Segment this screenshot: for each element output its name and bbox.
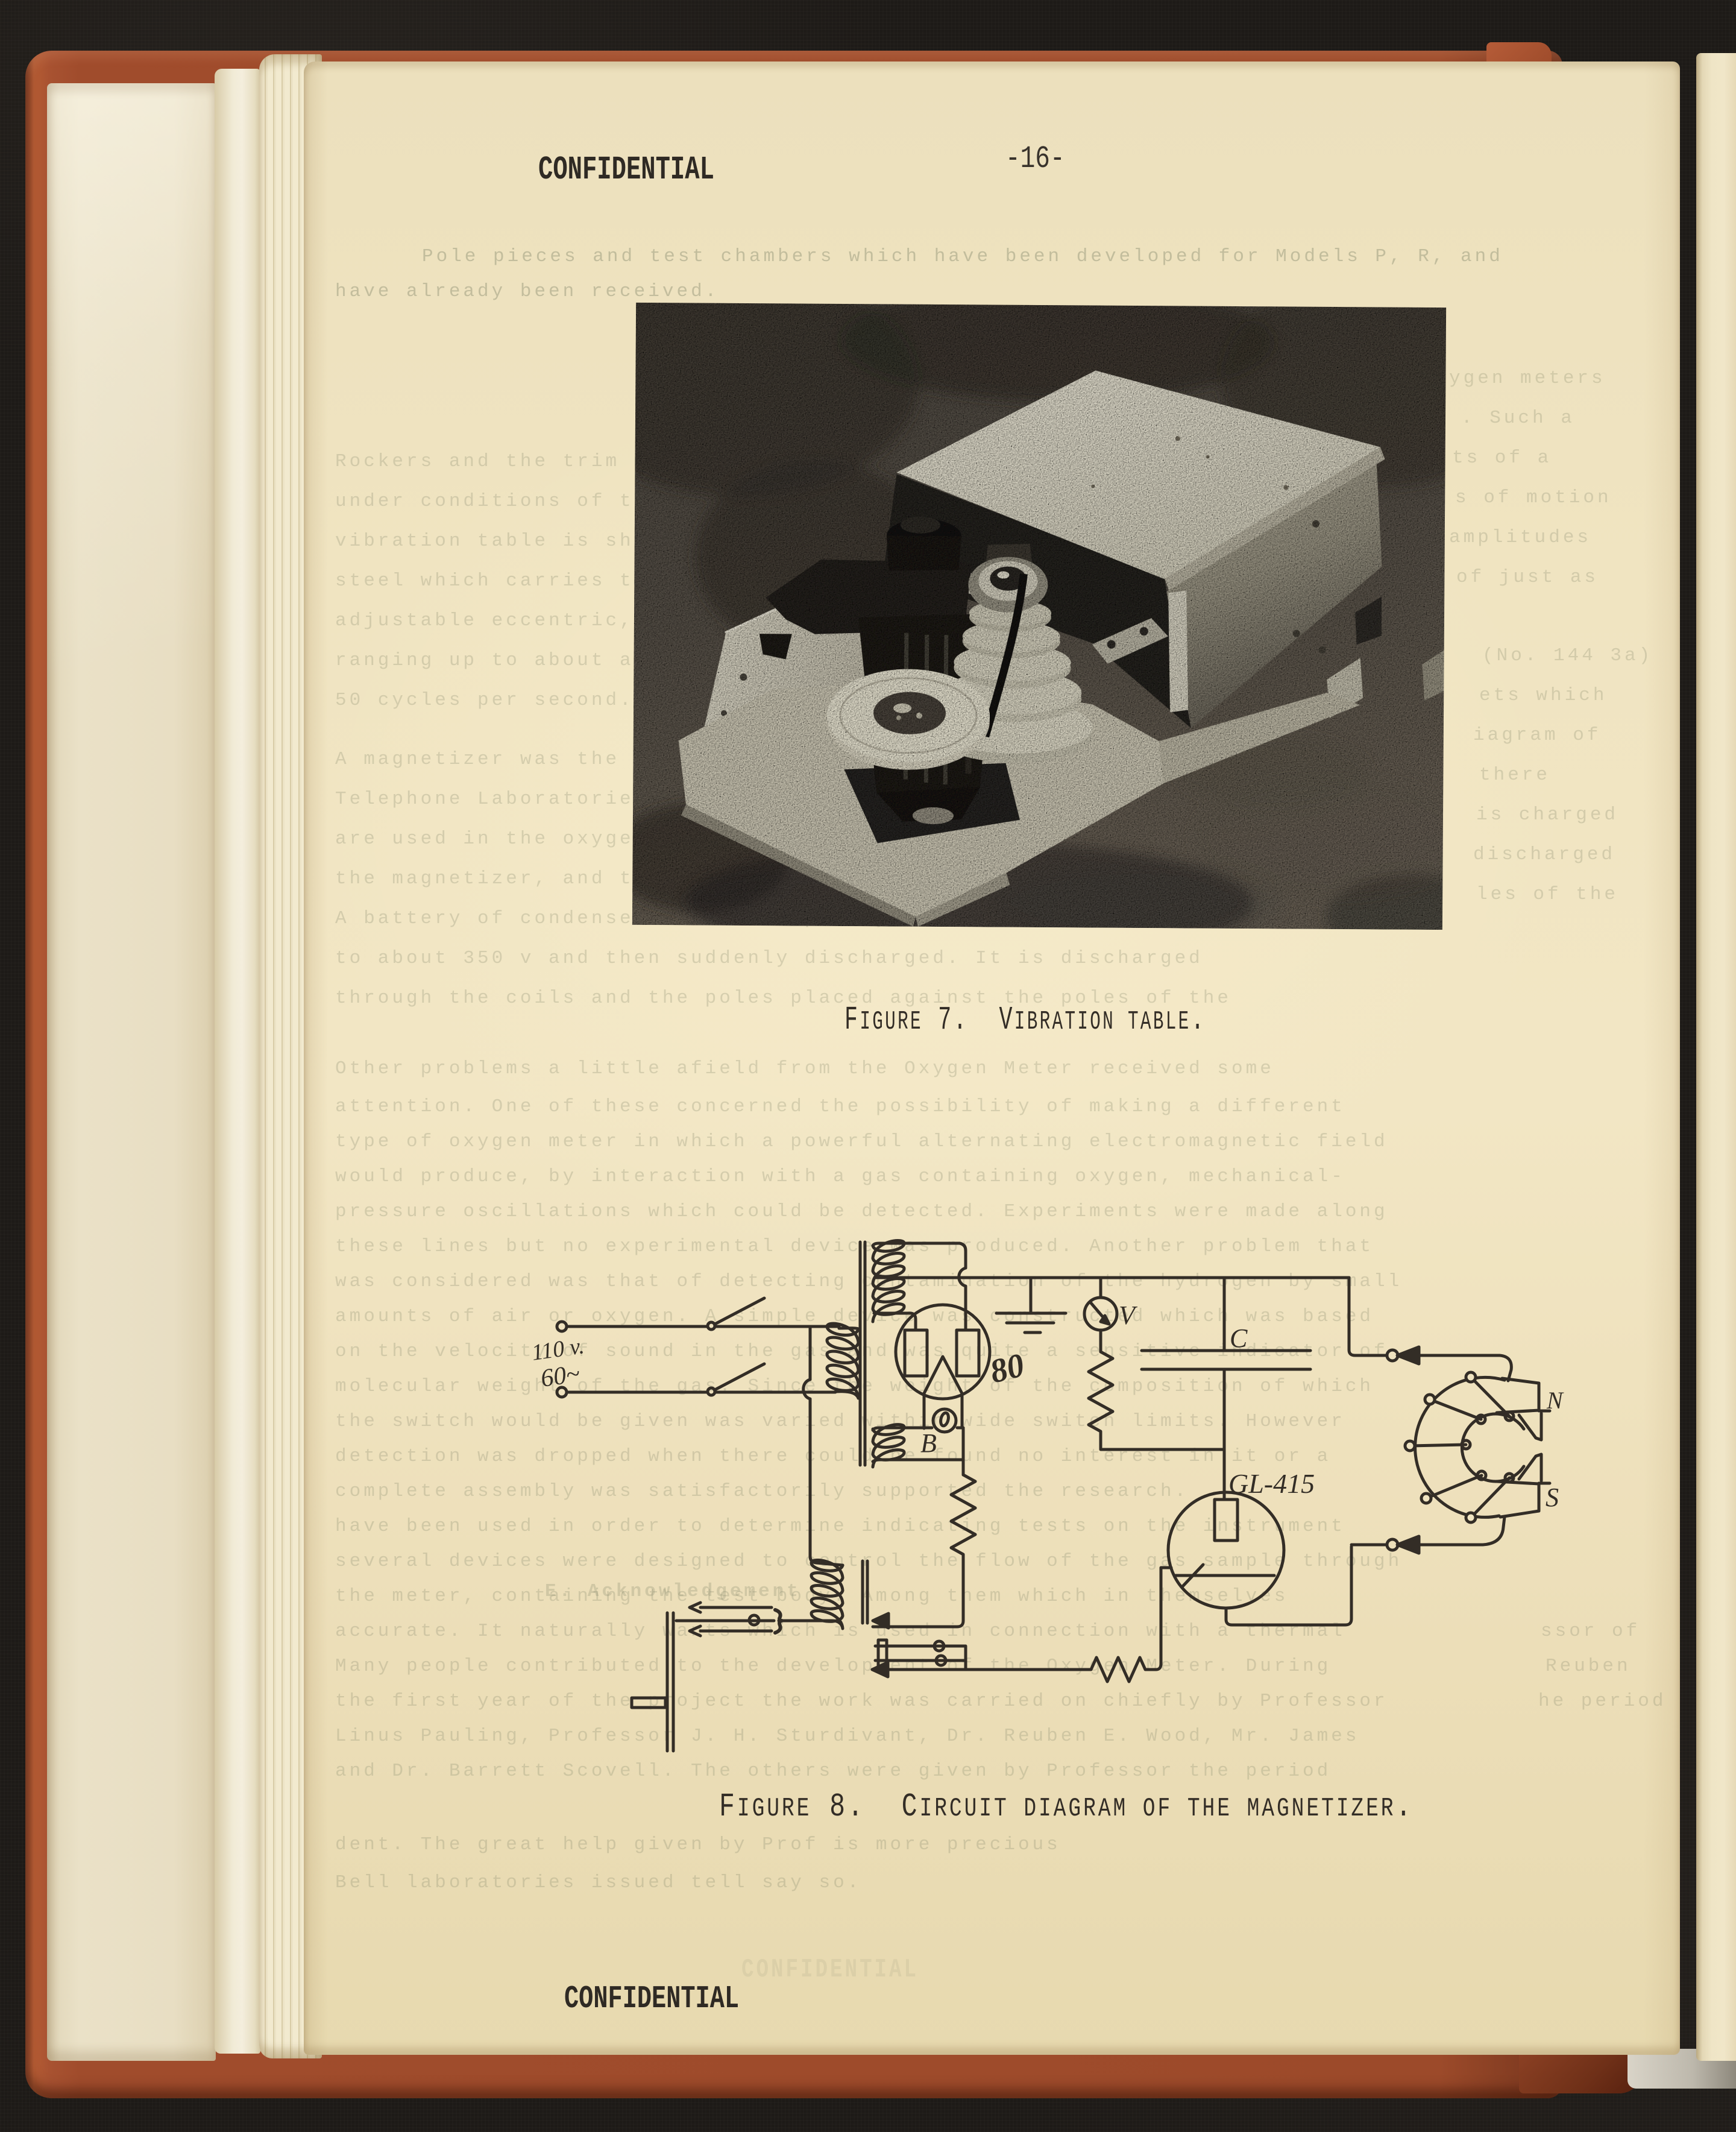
svg-text:B: B (920, 1428, 937, 1458)
svg-text:C: C (1230, 1323, 1248, 1353)
svg-text:GL-415: GL-415 (1228, 1468, 1315, 1499)
svg-text:80: 80 (986, 1346, 1028, 1391)
svg-text:V: V (1119, 1301, 1138, 1330)
svg-text:60~: 60~ (539, 1360, 582, 1393)
svg-text:S: S (1546, 1483, 1559, 1512)
svg-text:N: N (1546, 1387, 1564, 1414)
